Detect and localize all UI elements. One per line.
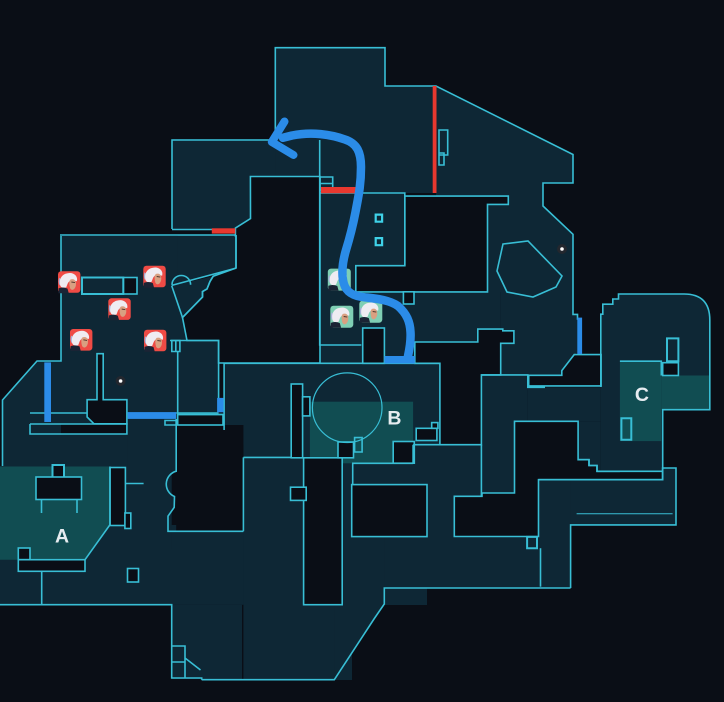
svg-text:B: B bbox=[387, 408, 401, 430]
svg-text:A: A bbox=[55, 526, 69, 548]
svg-text:C: C bbox=[635, 384, 649, 406]
